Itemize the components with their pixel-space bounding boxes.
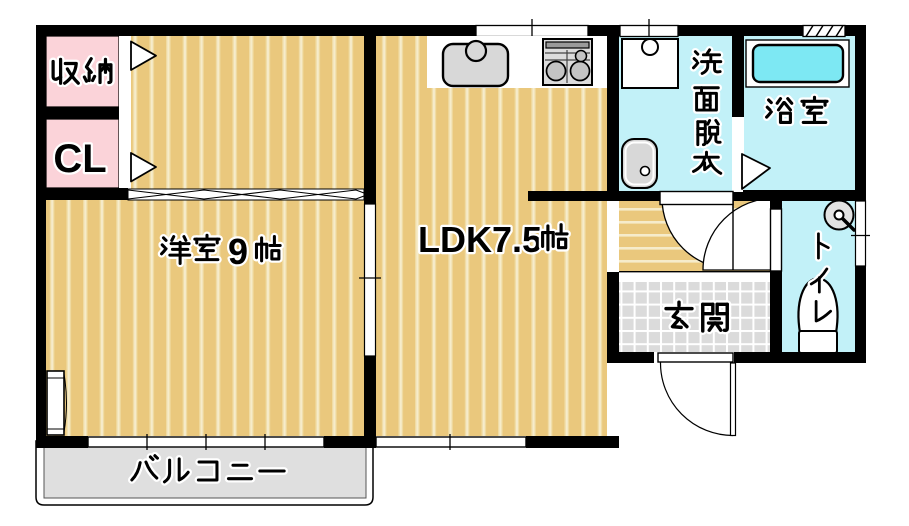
svg-text:LDK7.5: LDK7.5	[418, 219, 542, 260]
svg-text:9: 9	[228, 231, 248, 272]
svg-text:CL: CL	[53, 137, 106, 181]
